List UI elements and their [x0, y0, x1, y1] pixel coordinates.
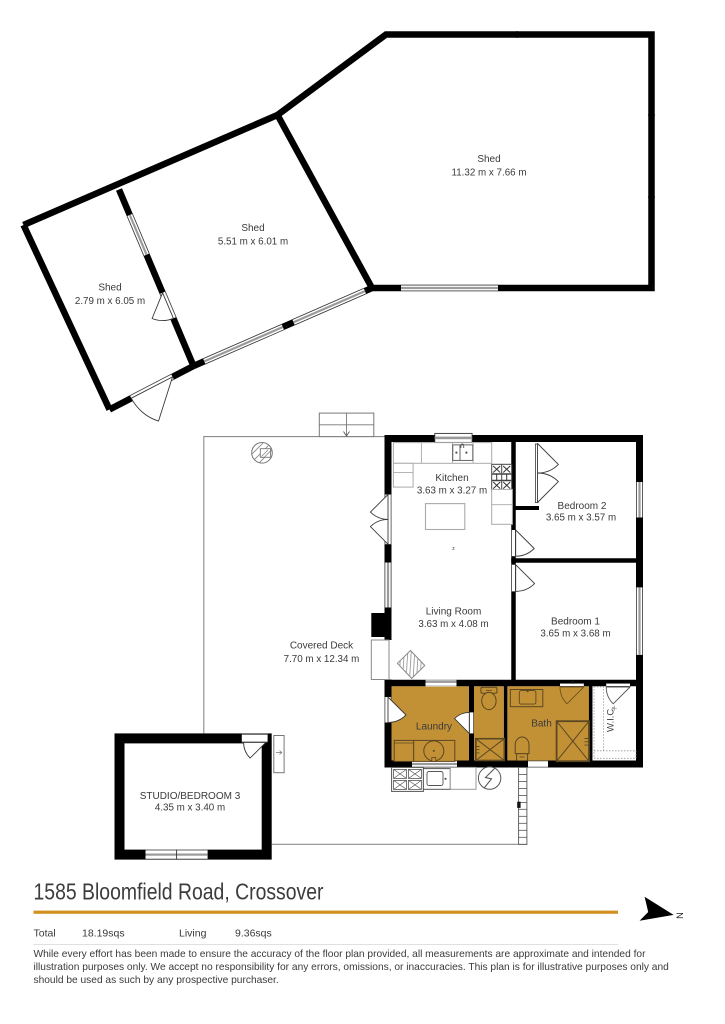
svg-text:5.51 m x 6.01 m: 5.51 m x 6.01 m: [218, 237, 288, 248]
svg-text:N: N: [675, 912, 685, 919]
svg-text:4.35 m x 3.40 m: 4.35 m x 3.40 m: [155, 803, 225, 814]
svg-text:3.65 m x 3.68 m: 3.65 m x 3.68 m: [540, 629, 610, 640]
svg-text:illustration purposes only. We: illustration purposes only. We accept no…: [34, 962, 670, 973]
svg-text:While every effort has been ma: While every effort has been made to ensu…: [34, 949, 647, 960]
svg-text:7.70 m x 12.34 m: 7.70 m x 12.34 m: [284, 654, 360, 665]
svg-text:Bedroom 2: Bedroom 2: [558, 501, 607, 512]
svg-text:Shed: Shed: [477, 154, 500, 165]
svg-text:1585 Bloomfield Road, Crossove: 1585 Bloomfield Road, Crossover: [34, 879, 324, 905]
svg-text:3.63 m x 4.08 m: 3.63 m x 4.08 m: [418, 619, 488, 630]
svg-text:W.I.C.: W.I.C.: [606, 706, 617, 732]
svg-text:Kitchen: Kitchen: [435, 473, 468, 484]
svg-text:Laundry: Laundry: [416, 722, 452, 733]
svg-text:Living: Living: [179, 928, 207, 940]
svg-text:Living Room: Living Room: [426, 607, 482, 618]
svg-text:3.65 m x 3.57 m: 3.65 m x 3.57 m: [546, 513, 616, 524]
svg-text:9.36sqs: 9.36sqs: [235, 928, 272, 940]
svg-text:3.63 m x 3.27 m: 3.63 m x 3.27 m: [417, 486, 487, 497]
svg-text:Total: Total: [34, 928, 56, 940]
svg-text:should be used as such by any: should be used as such by any prospectiv…: [34, 975, 279, 986]
svg-text:11.32 m x 7.66 m: 11.32 m x 7.66 m: [452, 168, 527, 179]
svg-text:18.19sqs: 18.19sqs: [82, 928, 125, 940]
svg-text:Shed: Shed: [241, 223, 264, 234]
svg-text:STUDIO/BEDROOM 3: STUDIO/BEDROOM 3: [140, 791, 241, 802]
svg-text:Bedroom 1: Bedroom 1: [551, 617, 600, 628]
svg-text:Bath: Bath: [531, 719, 552, 730]
svg-text:Shed: Shed: [98, 283, 121, 294]
svg-text:2.79 m x 6.05 m: 2.79 m x 6.05 m: [75, 296, 145, 307]
svg-text:Covered Deck: Covered Deck: [290, 641, 354, 652]
